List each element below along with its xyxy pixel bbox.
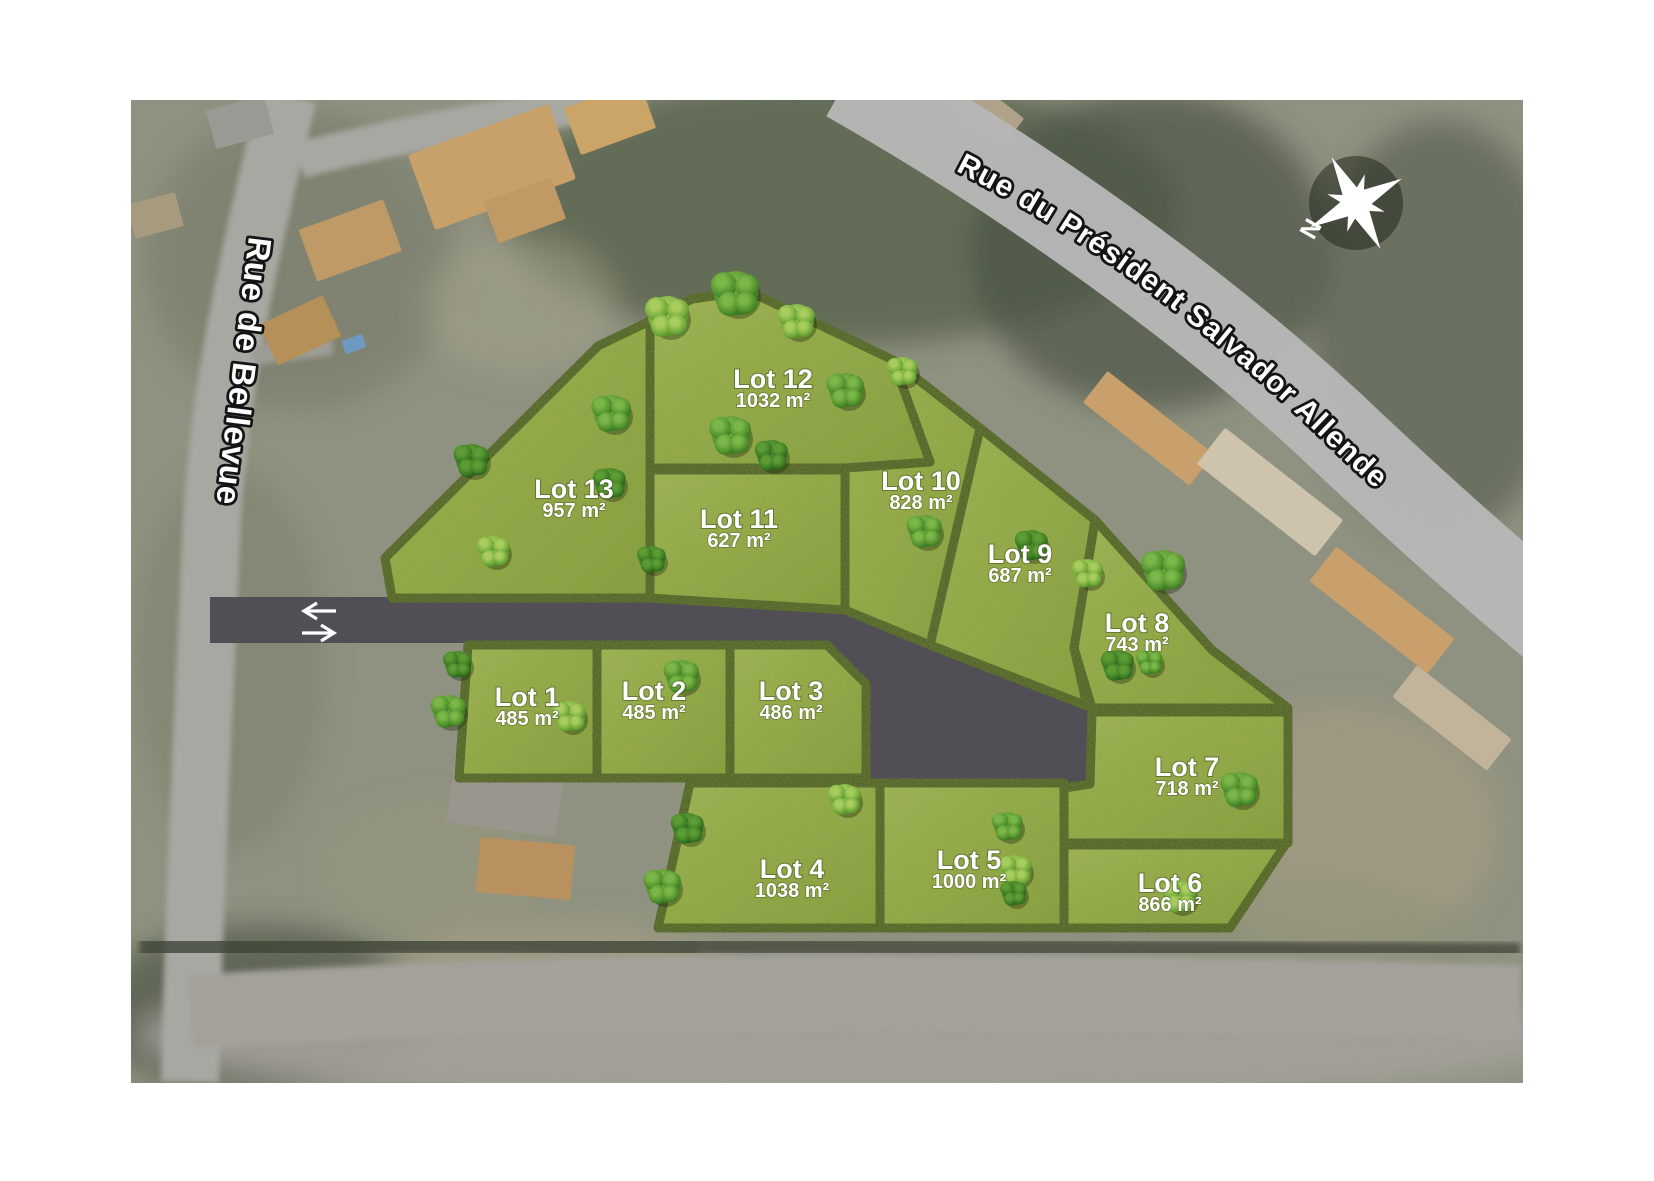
lot-area-label-4: 1038 m²	[755, 880, 830, 902]
subdivision-plan-image: Lot 1485 m²Lot 2485 m²Lot 3486 m²Lot 410…	[0, 0, 1654, 1181]
lot-area-label-10: 828 m²	[889, 492, 953, 514]
lot-area-label-13: 957 m²	[542, 500, 606, 522]
lot-area-label-7: 718 m²	[1155, 778, 1219, 800]
lot-area-label-3: 486 m²	[759, 702, 823, 724]
lot-area-label-2: 485 m²	[622, 702, 686, 724]
lot-area-label-9: 687 m²	[988, 565, 1052, 587]
aerial-hedgerows	[140, 942, 1520, 952]
lot-area-label-12: 1032 m²	[736, 390, 811, 412]
lot-area-label-6: 866 m²	[1138, 894, 1202, 916]
lot-area-label-5: 1000 m²	[932, 871, 1007, 893]
lot-area-label-11: 627 m²	[707, 530, 771, 552]
lot-area-label-8: 743 m²	[1105, 634, 1169, 656]
lot-area-label-1: 485 m²	[495, 708, 559, 730]
